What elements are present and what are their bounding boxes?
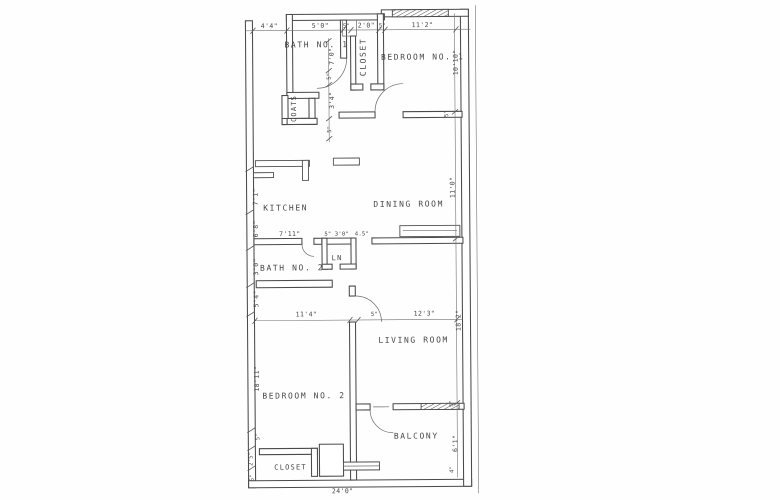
dim-hall-1: 7'0" bbox=[328, 48, 336, 65]
dim-top-1: 4'4" bbox=[261, 22, 278, 30]
wall-balcony-stub bbox=[356, 404, 370, 410]
dim-right-4: 18'2" bbox=[454, 309, 462, 331]
room-label-kitchen: KITCHEN bbox=[263, 203, 308, 212]
wall-outer-right bbox=[460, 9, 471, 486]
room-label-bedroom2: BEDROOM NO. 2 bbox=[262, 391, 345, 401]
interior-walls bbox=[252, 13, 464, 480]
dim-mid-1: 11'4" bbox=[296, 310, 318, 318]
dim-left-2: 6'8" bbox=[252, 220, 260, 237]
dim-hall-2: 5" bbox=[327, 73, 333, 80]
outer-walls bbox=[245, 5, 478, 495]
dim-top-2: 5'0" bbox=[312, 22, 329, 30]
dim-balcony-1: 5" bbox=[449, 400, 455, 407]
dim-left-1: 7'1" bbox=[252, 188, 260, 205]
kitchen-counter-return bbox=[302, 160, 308, 180]
dim-balcony-3: 4" bbox=[450, 466, 456, 473]
floorplan-page: BATH NO. 1 BEDROOM NO. 1 CLOSET COATS KI… bbox=[0, 0, 780, 500]
wall-bedroom1-bottom-a bbox=[339, 112, 375, 118]
room-label-bath2: BATH NO. 2 bbox=[260, 263, 324, 272]
dim-hall-4: 5" bbox=[327, 126, 333, 133]
dim-top-6: 11'2" bbox=[412, 21, 434, 29]
scan-edge-line bbox=[475, 5, 478, 493]
dim-top-3: 5" bbox=[343, 24, 350, 30]
dining-planter bbox=[400, 225, 460, 236]
dim-right-1: 10'10" bbox=[452, 49, 460, 75]
room-label-dining: DINING ROOM bbox=[373, 199, 444, 208]
wall-closet2-top bbox=[259, 448, 317, 454]
dim-bottom-1: 24'0" bbox=[332, 487, 354, 495]
dim-left-4: 5'4" bbox=[252, 290, 260, 307]
dim-mid-2: 5" bbox=[371, 312, 378, 318]
door-arc-bath2 bbox=[302, 244, 314, 256]
wall-top-bath-closet bbox=[286, 14, 384, 21]
wall-closet1-bottom-a bbox=[351, 84, 363, 90]
dim-left-8: 6" bbox=[250, 474, 256, 481]
room-label-bath1: BATH NO. 1 bbox=[284, 40, 348, 49]
room-label-balcony: BALCONY bbox=[394, 431, 439, 440]
door-arc-balcony bbox=[370, 410, 393, 433]
room-label-closet2: CLOSET bbox=[274, 463, 307, 471]
dim-bath2row-1: 7'11" bbox=[279, 230, 301, 238]
wall-closet2-right bbox=[311, 448, 317, 476]
wall-outer-left bbox=[245, 21, 255, 488]
windows bbox=[392, 9, 459, 409]
wall-divider-b bbox=[372, 237, 463, 244]
dim-left-7: 2'5" bbox=[248, 452, 254, 466]
wall-bedroom1-bottom-b bbox=[403, 111, 462, 117]
wall-closet1-bottom-b bbox=[371, 84, 384, 90]
dim-bath2row-2: 5" bbox=[324, 232, 331, 238]
dim-mid-3: 12'3" bbox=[414, 309, 436, 317]
dim-bath2row-3: 3'0" bbox=[335, 232, 349, 238]
wall-closet1-left bbox=[351, 36, 356, 90]
kitchen-counter bbox=[255, 160, 309, 166]
dim-top-5: 5" bbox=[379, 23, 386, 29]
wall-linen-bottom-b bbox=[340, 264, 356, 269]
dim-hall-3: 3'4" bbox=[328, 92, 336, 109]
pass-through bbox=[333, 158, 359, 165]
wall-post bbox=[319, 444, 343, 476]
wall-partition-main bbox=[350, 322, 357, 480]
floorplan-drawing: BATH NO. 1 BEDROOM NO. 1 CLOSET COATS KI… bbox=[0, 0, 780, 500]
kitchen-counter-stub bbox=[253, 173, 273, 178]
wall-outer-bottom bbox=[249, 479, 472, 488]
dim-top-4: 2'0" bbox=[358, 21, 375, 29]
room-label-closet1: CLOSET bbox=[359, 38, 368, 77]
dim-left-3: 3'0" bbox=[252, 258, 260, 275]
wall-divider-jamb bbox=[314, 238, 322, 244]
wall-divider-a bbox=[254, 238, 302, 244]
room-label-living: LIVING ROOM bbox=[378, 335, 449, 344]
window-bedroom1 bbox=[392, 9, 448, 16]
dim-left-6: 5" bbox=[255, 433, 261, 440]
dim-right-2: 5" bbox=[444, 110, 450, 117]
room-label-coats: COATS bbox=[290, 95, 298, 122]
dim-bath2row-4: 4.5" bbox=[355, 231, 369, 237]
dim-left-5: 18'11" bbox=[253, 366, 261, 392]
wall-bath2-bottom bbox=[256, 280, 332, 288]
wall-partition-top bbox=[349, 286, 355, 296]
room-label-linen: LN bbox=[332, 254, 343, 262]
dim-right-3: 11'0" bbox=[448, 177, 456, 199]
wall-coats-right bbox=[309, 98, 315, 120]
wall-bath1-left bbox=[286, 14, 293, 98]
dim-balcony-2: 6'1" bbox=[451, 435, 459, 452]
